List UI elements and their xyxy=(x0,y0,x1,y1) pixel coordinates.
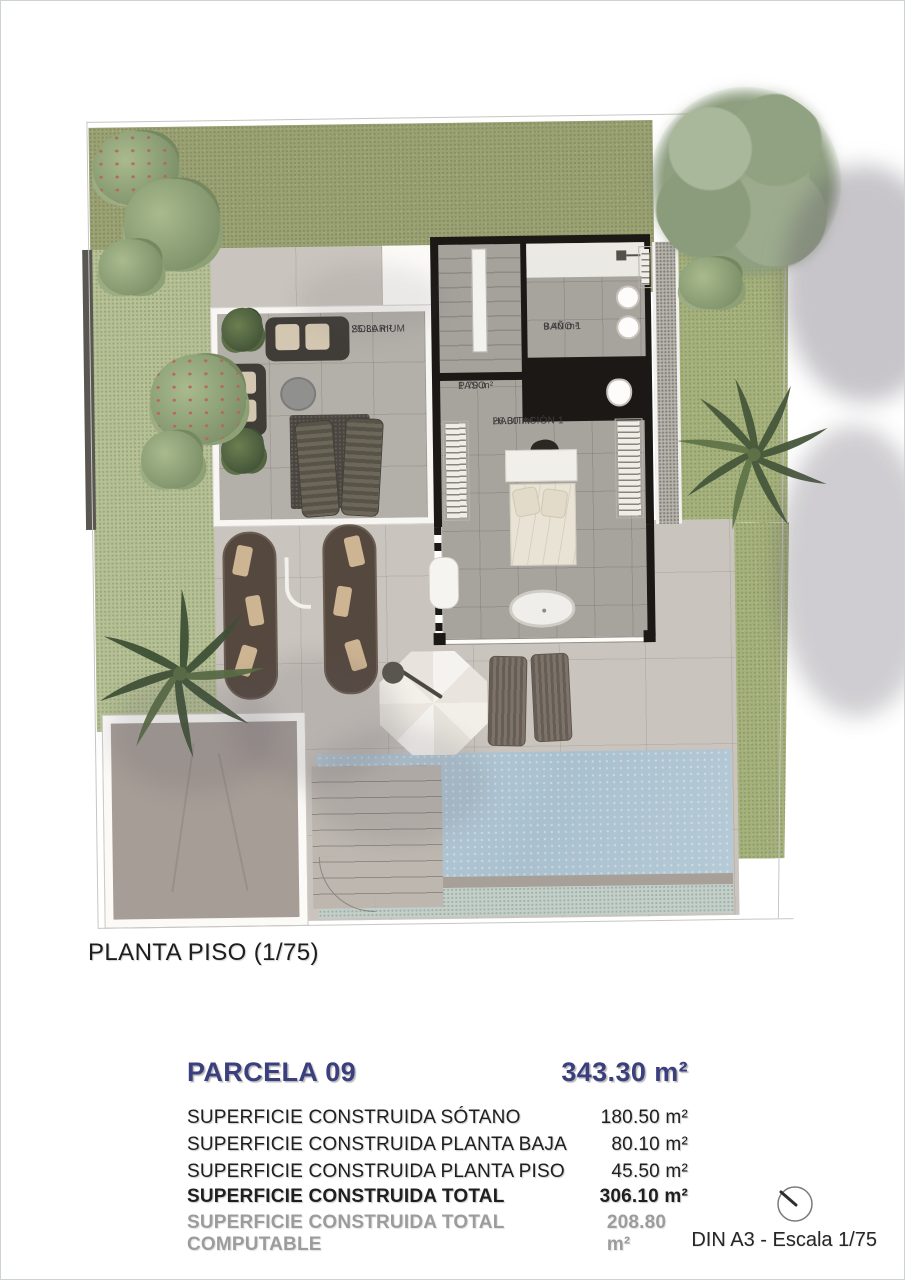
summary-label: SUPERFICIE CONSTRUIDA SÓTANO xyxy=(187,1107,521,1129)
wall-post xyxy=(434,633,446,645)
summary-value: 80.10 m² xyxy=(611,1134,688,1156)
room-area: 1.70 m² xyxy=(458,380,493,392)
plan-sheet-page: SOLARIUM 25.30 m² BAÑO 1 9.40 m² PASO 1.… xyxy=(0,0,905,1280)
parcel-label: PARCELA 09 xyxy=(187,1057,356,1088)
bedroom-wall-right xyxy=(646,524,656,636)
summary-label: SUPERFICIE CONSTRUIDA TOTAL xyxy=(187,1186,505,1208)
sun-lounger xyxy=(341,417,384,517)
room-area: 9.40 m² xyxy=(543,321,578,333)
wall-window-symbol xyxy=(638,246,653,288)
shower-area xyxy=(526,242,644,278)
compass-north-icon xyxy=(774,1184,816,1226)
summary-row: SUPERFICIE CONSTRUIDA SÓTANO 180.50 m² xyxy=(187,1107,688,1129)
room-area: 25.30 m² xyxy=(351,324,392,336)
daybed-cushion xyxy=(232,545,254,578)
summary-label: SUPERFICIE CONSTRUIDA PLANTA BAJA xyxy=(187,1134,567,1156)
summary-value: 208.80 m² xyxy=(607,1212,688,1256)
wardrobe xyxy=(443,421,470,521)
wardrobe xyxy=(615,418,644,518)
summary-row: SUPERFICIE CONSTRUIDA PLANTA PISO 45.50 … xyxy=(187,1161,688,1183)
summary-row: SUPERFICIE CONSTRUIDA PLANTA BAJA 80.10 … xyxy=(187,1134,688,1156)
wicker-lounger xyxy=(530,653,572,743)
sun-lounger xyxy=(294,419,340,518)
sofa-cushion xyxy=(275,324,299,350)
bathtub-drain xyxy=(542,609,546,613)
staircase xyxy=(438,244,522,373)
pillow xyxy=(540,488,568,519)
summary-row-total: SUPERFICIE CONSTRUIDA TOTAL 306.10 m² xyxy=(187,1186,688,1208)
daybed-cushion xyxy=(333,585,353,617)
room-area: 26.00 m² xyxy=(493,416,534,428)
floor-plan-drawing: SOLARIUM 25.30 m² BAÑO 1 9.40 m² PASO 1.… xyxy=(80,108,803,936)
plan-caption: PLANTA PISO (1/75) xyxy=(88,939,319,967)
summary-label: SUPERFICIE CONSTRUIDA PLANTA PISO xyxy=(187,1161,565,1183)
bush-icon xyxy=(678,257,743,310)
scale-note: DIN A3 - Escala 1/75 xyxy=(691,1229,877,1252)
summary-row-computable: SUPERFICIE CONSTRUIDA TOTAL COMPUTABLE 2… xyxy=(187,1212,688,1256)
stair-stringer xyxy=(471,248,487,352)
side-table xyxy=(428,557,459,609)
daybed-cushion xyxy=(343,535,365,568)
wall-post xyxy=(644,630,656,642)
summary-value: 180.50 m² xyxy=(601,1107,688,1129)
parcel-area: 343.30 m² xyxy=(561,1057,688,1088)
shower-head xyxy=(616,250,626,260)
parcel-header-row: PARCELA 09 343.30 m² xyxy=(187,1057,688,1088)
summary-value: 45.50 m² xyxy=(611,1161,688,1183)
bush-icon xyxy=(141,430,204,489)
summary-label: SUPERFICIE CONSTRUIDA TOTAL COMPUTABLE xyxy=(187,1212,607,1256)
summary-value: 306.10 m² xyxy=(600,1186,688,1208)
bush-icon xyxy=(98,239,163,296)
pillow xyxy=(511,486,541,518)
wicker-lounger xyxy=(488,656,528,747)
bed-headboard xyxy=(505,449,577,482)
